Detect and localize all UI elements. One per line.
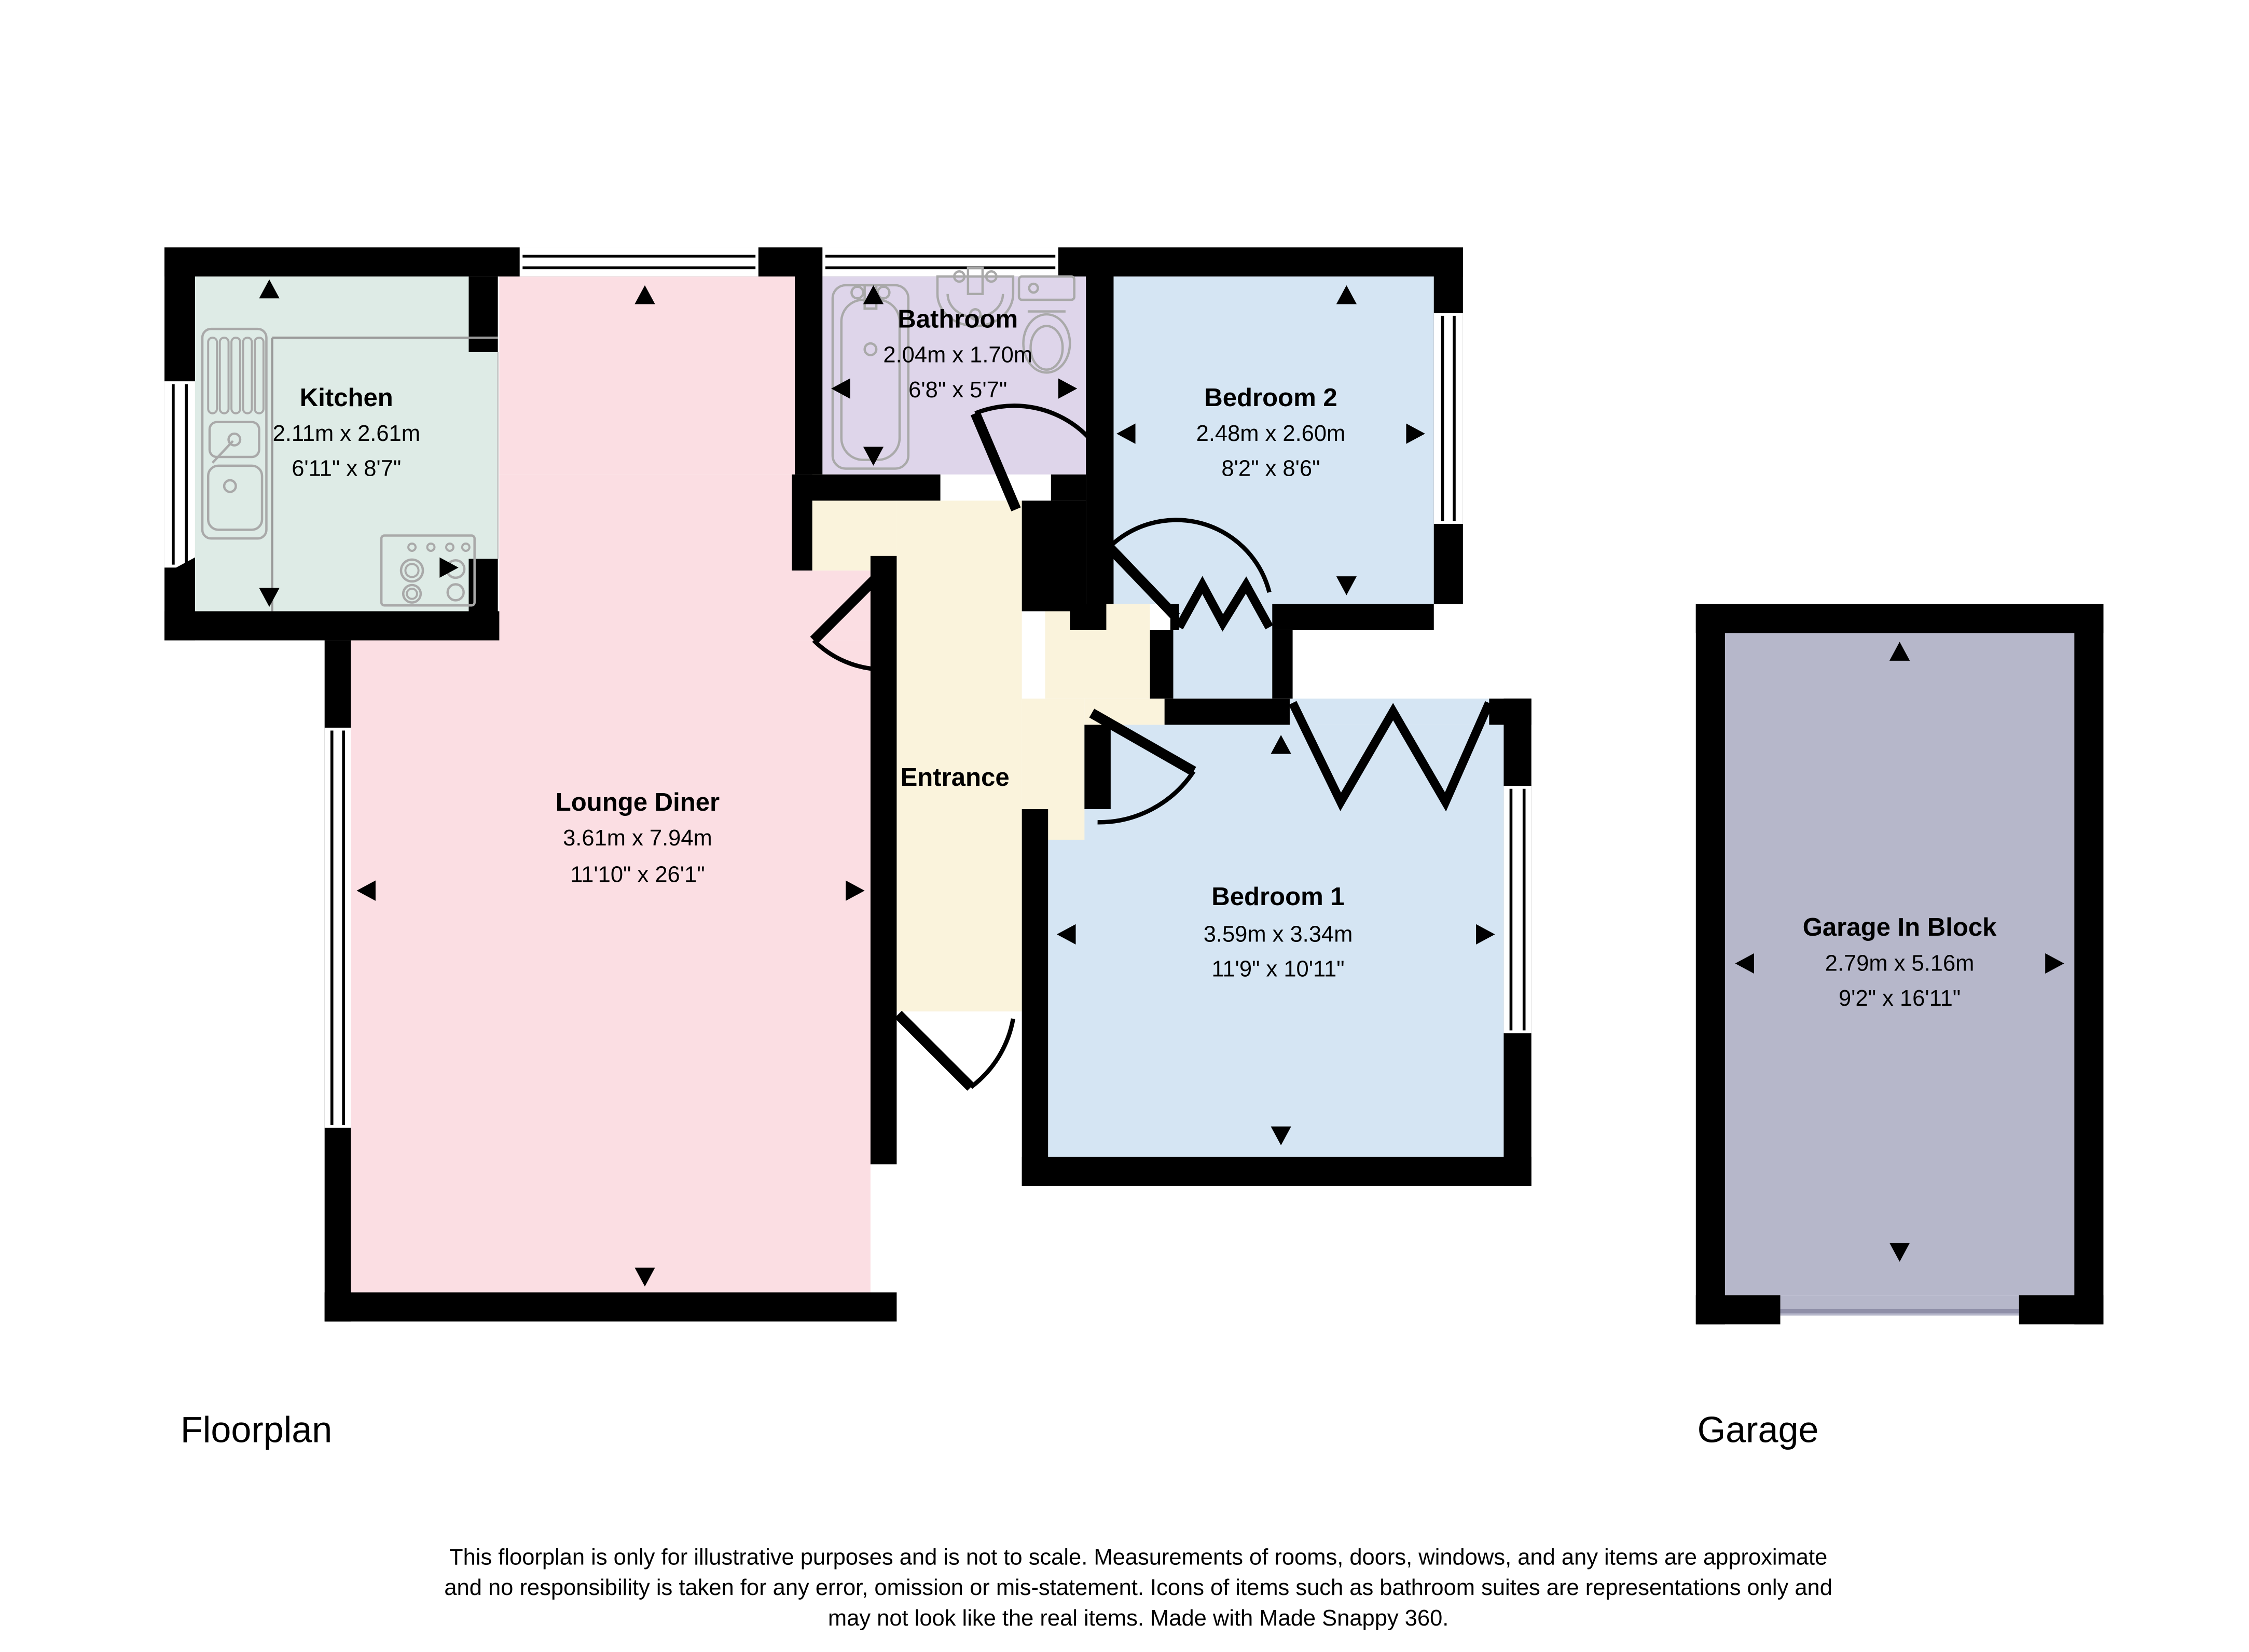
kitchen-label: Kitchen (300, 384, 393, 412)
wall-bathroom-bottom-right (1051, 475, 1086, 501)
window-lounge-top (520, 247, 758, 276)
disclaimer-line-3: may not look like the real items. Made w… (828, 1606, 1448, 1631)
wall-bed1-left (1022, 809, 1048, 1186)
garage-room-label: Garage In Block (1803, 913, 1997, 941)
footer-labels: Floorplan Garage This floorplan is only … (181, 1410, 1832, 1631)
wall-hall-right-upper (1022, 501, 1086, 611)
window-lounge-left (325, 728, 351, 1128)
front-door (898, 1015, 1013, 1087)
wall-garage-top (1696, 604, 2104, 633)
garage-caption: Garage (1698, 1410, 1819, 1450)
wall-bed2-door-jamb (1070, 604, 1106, 630)
wall-garage-bottom-right (2019, 1295, 2104, 1324)
lounge-floor-mid (499, 475, 792, 643)
lounge-label: Lounge Diner (556, 788, 720, 816)
wall-bathroom-bottom-left (795, 475, 941, 501)
bathroom-label: Bathroom (898, 305, 1018, 333)
kitchen-imperial: 6'11" x 8'7" (292, 456, 401, 481)
wall-kitchen-bottom (164, 611, 499, 640)
lounge-floor-upper (499, 276, 795, 475)
wall-bed1-bottom (1022, 1157, 1531, 1186)
bathroom-metric: 2.04m x 1.70m (883, 343, 1032, 368)
wall-lounge-bottom (325, 1293, 897, 1322)
wall-lounge-door-jamb (871, 556, 897, 626)
lounge-floor-main (351, 641, 871, 1293)
window-bathroom-top (822, 247, 1058, 276)
garage-imperial: 9'2" x 16'11" (1839, 986, 1961, 1011)
lounge-metric: 3.61m x 7.94m (563, 826, 712, 851)
wall-bathroom-left (795, 247, 822, 475)
bedroom2-label: Bedroom 2 (1204, 384, 1337, 412)
wall-bed2-bottom (1272, 604, 1433, 630)
wall-bed1-top (1165, 699, 1290, 725)
wall-bed1-door-jamb (1084, 725, 1111, 809)
bedroom1-label: Bedroom 1 (1211, 883, 1344, 911)
disclaimer-line-1: This floorplan is only for illustrative … (449, 1545, 1827, 1570)
bedroom1-imperial: 11'9" x 10'11" (1211, 957, 1344, 982)
wall-closet-right (1272, 630, 1292, 699)
floorplan-page: Kitchen 2.11m x 2.61m 6'11" x 8'7" Loung… (0, 0, 2249, 1652)
wall-hall-left (871, 626, 897, 1164)
window-kitchen-left (164, 381, 195, 567)
floorplan-caption: Floorplan (181, 1410, 332, 1450)
entrance-label: Entrance (901, 763, 1010, 792)
wall-garage-right (2074, 604, 2103, 1324)
wall-closet-left (1150, 630, 1174, 699)
closet-floor (1173, 630, 1272, 699)
window-bedroom2-right (1434, 313, 1463, 524)
bedroom2-metric: 2.48m x 2.60m (1196, 421, 1346, 446)
bedroom1-metric: 3.59m x 3.34m (1204, 922, 1353, 947)
floorplan-canvas: Kitchen 2.11m x 2.61m 6'11" x 8'7" Loung… (0, 0, 2249, 1652)
bathroom-imperial: 6'8" x 5'7" (908, 378, 1007, 402)
wall-garage-left (1696, 604, 1725, 1324)
wall-kitchen-right-upper (468, 276, 498, 352)
wall-garage-bottom-left (1696, 1295, 1781, 1324)
disclaimer-line-2: and no responsibility is taken for any e… (444, 1575, 1832, 1600)
kitchen-metric: 2.11m x 2.61m (273, 421, 420, 446)
garage-metric: 2.79m x 5.16m (1825, 951, 1975, 976)
bedroom2-imperial: 8'2" x 8'6" (1221, 456, 1320, 481)
entrance-floor-main (896, 501, 1022, 1011)
window-bedroom1-right (1503, 786, 1531, 1033)
lounge-imperial: 11'10" x 26'1" (570, 862, 705, 887)
